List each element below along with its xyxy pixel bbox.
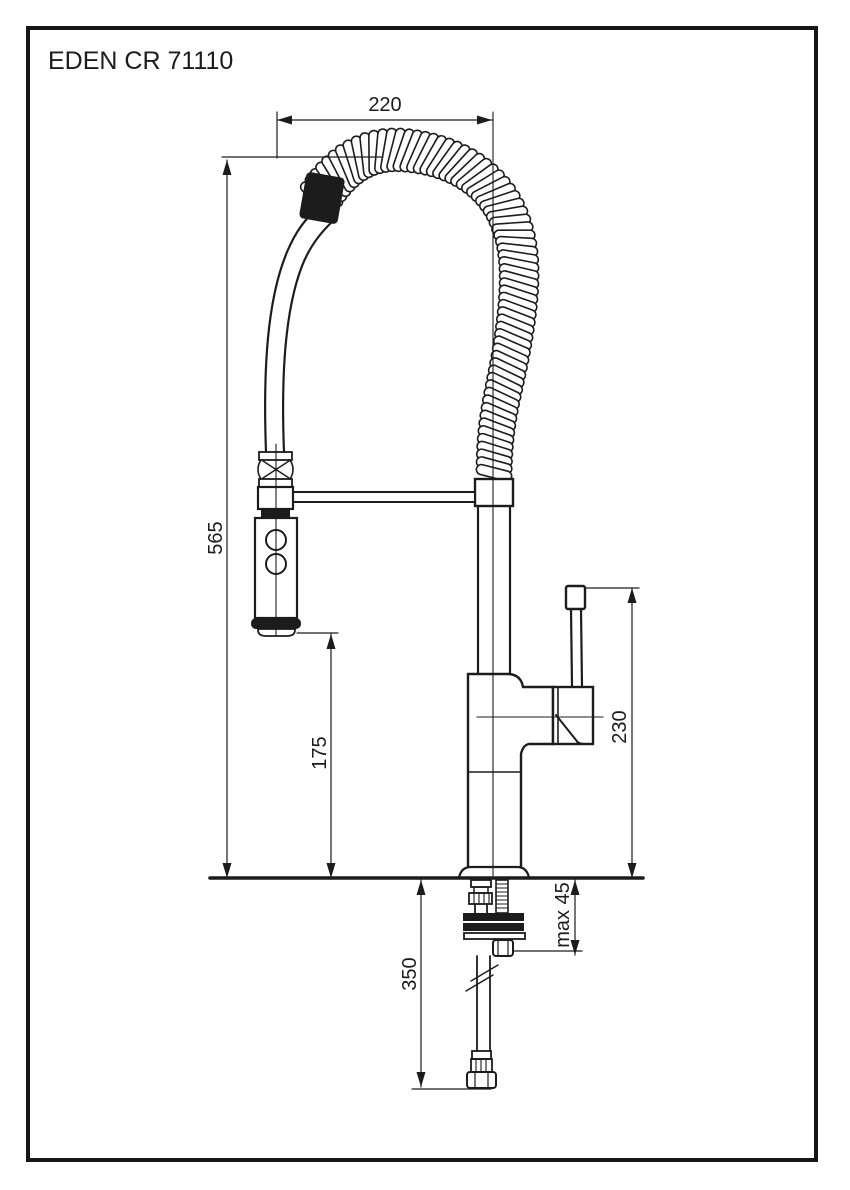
supply-hose [466, 956, 498, 1051]
spring-junction-block [475, 479, 513, 506]
gasket-upper [463, 913, 524, 921]
dim-label-350: 350 [399, 957, 421, 990]
faucet-technical-drawing: 220 565 175 230 max 45 350 [0, 0, 850, 1190]
handle-knob [566, 586, 585, 609]
dim-label-175: 175 [309, 736, 331, 769]
drawing-page: EDEN CR 71110 [0, 0, 850, 1190]
metal-washer [464, 933, 525, 939]
dim-label-565: 565 [205, 521, 227, 554]
under-counter-assembly [463, 880, 525, 1088]
threaded-stud [496, 880, 508, 913]
dim-label-220: 220 [368, 94, 401, 116]
gasket-lower [463, 923, 524, 931]
dim-label-230: 230 [609, 710, 631, 743]
spring-end-cap [299, 172, 344, 224]
fixing-nut [493, 940, 513, 956]
riser-column [475, 479, 513, 675]
dim-label-max45: max 45 [552, 882, 574, 948]
pipe-break-symbol [471, 965, 498, 981]
hose-end-nut [467, 1072, 496, 1088]
hose-end-fitting [467, 1051, 496, 1088]
handle-lever-shaft [571, 609, 572, 686]
pullout-hose-curve [265, 208, 333, 452]
spray-holder-bar [293, 492, 475, 502]
